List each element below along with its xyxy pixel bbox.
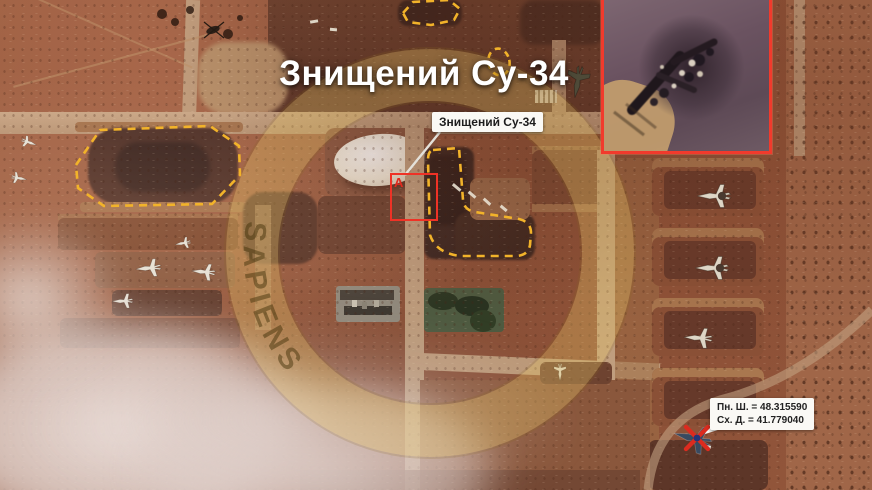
image-title: Знищений Су-34 — [0, 54, 848, 94]
marker-center-dot — [694, 435, 701, 442]
coordinates-label: Пн. Ш. = 48.315590 Сх. Д. = 41.779040 — [710, 398, 814, 430]
callout-label: Знищений Су-34 — [432, 112, 543, 132]
damage-outline-center — [428, 148, 531, 256]
detail-box-letter: A — [394, 175, 403, 190]
destroyed-aircraft-marker — [671, 421, 715, 456]
callout-pointer-line — [405, 132, 440, 175]
coordinates-latitude: Пн. Ш. = 48.315590 — [717, 401, 807, 414]
detail-box-a: A — [390, 173, 438, 221]
damage-outline-left — [76, 126, 240, 206]
damage-outline-top — [403, 0, 460, 25]
annotated-satellite-image: SAPIENS — [0, 0, 872, 490]
coordinates-longitude: Сх. Д. = 41.779040 — [717, 414, 807, 427]
